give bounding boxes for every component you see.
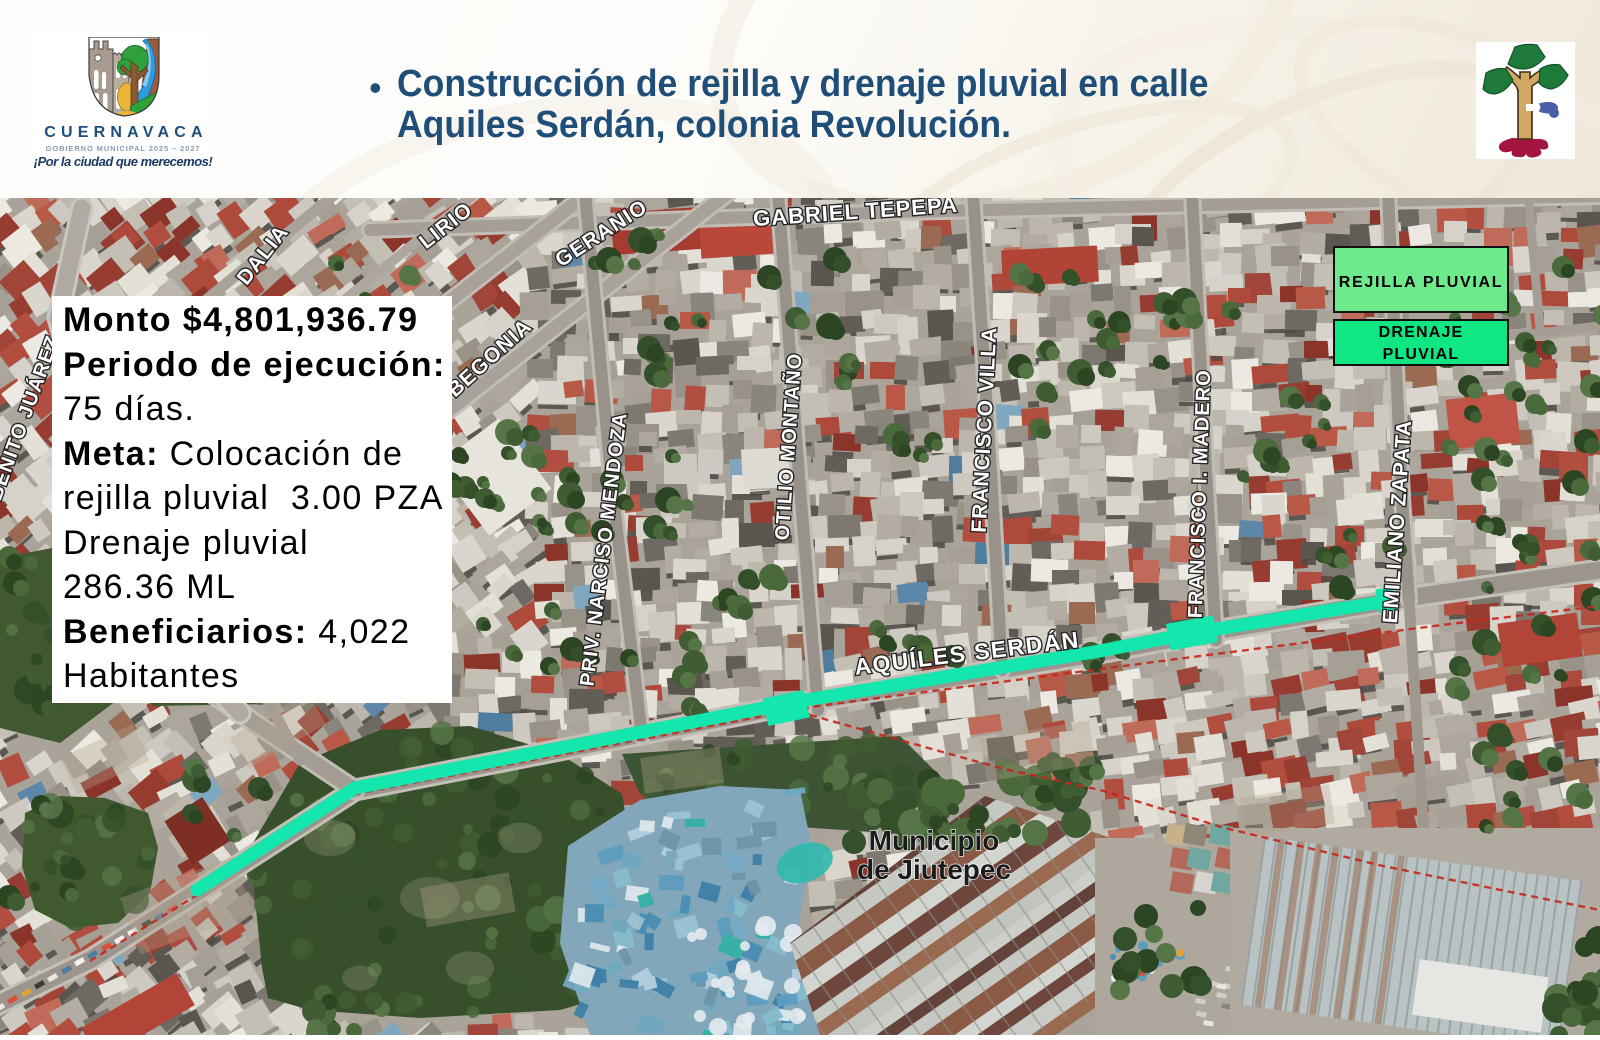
svg-text:de Jiutepec: de Jiutepec <box>857 854 1011 885</box>
svg-text:Municipio: Municipio <box>869 825 1000 856</box>
